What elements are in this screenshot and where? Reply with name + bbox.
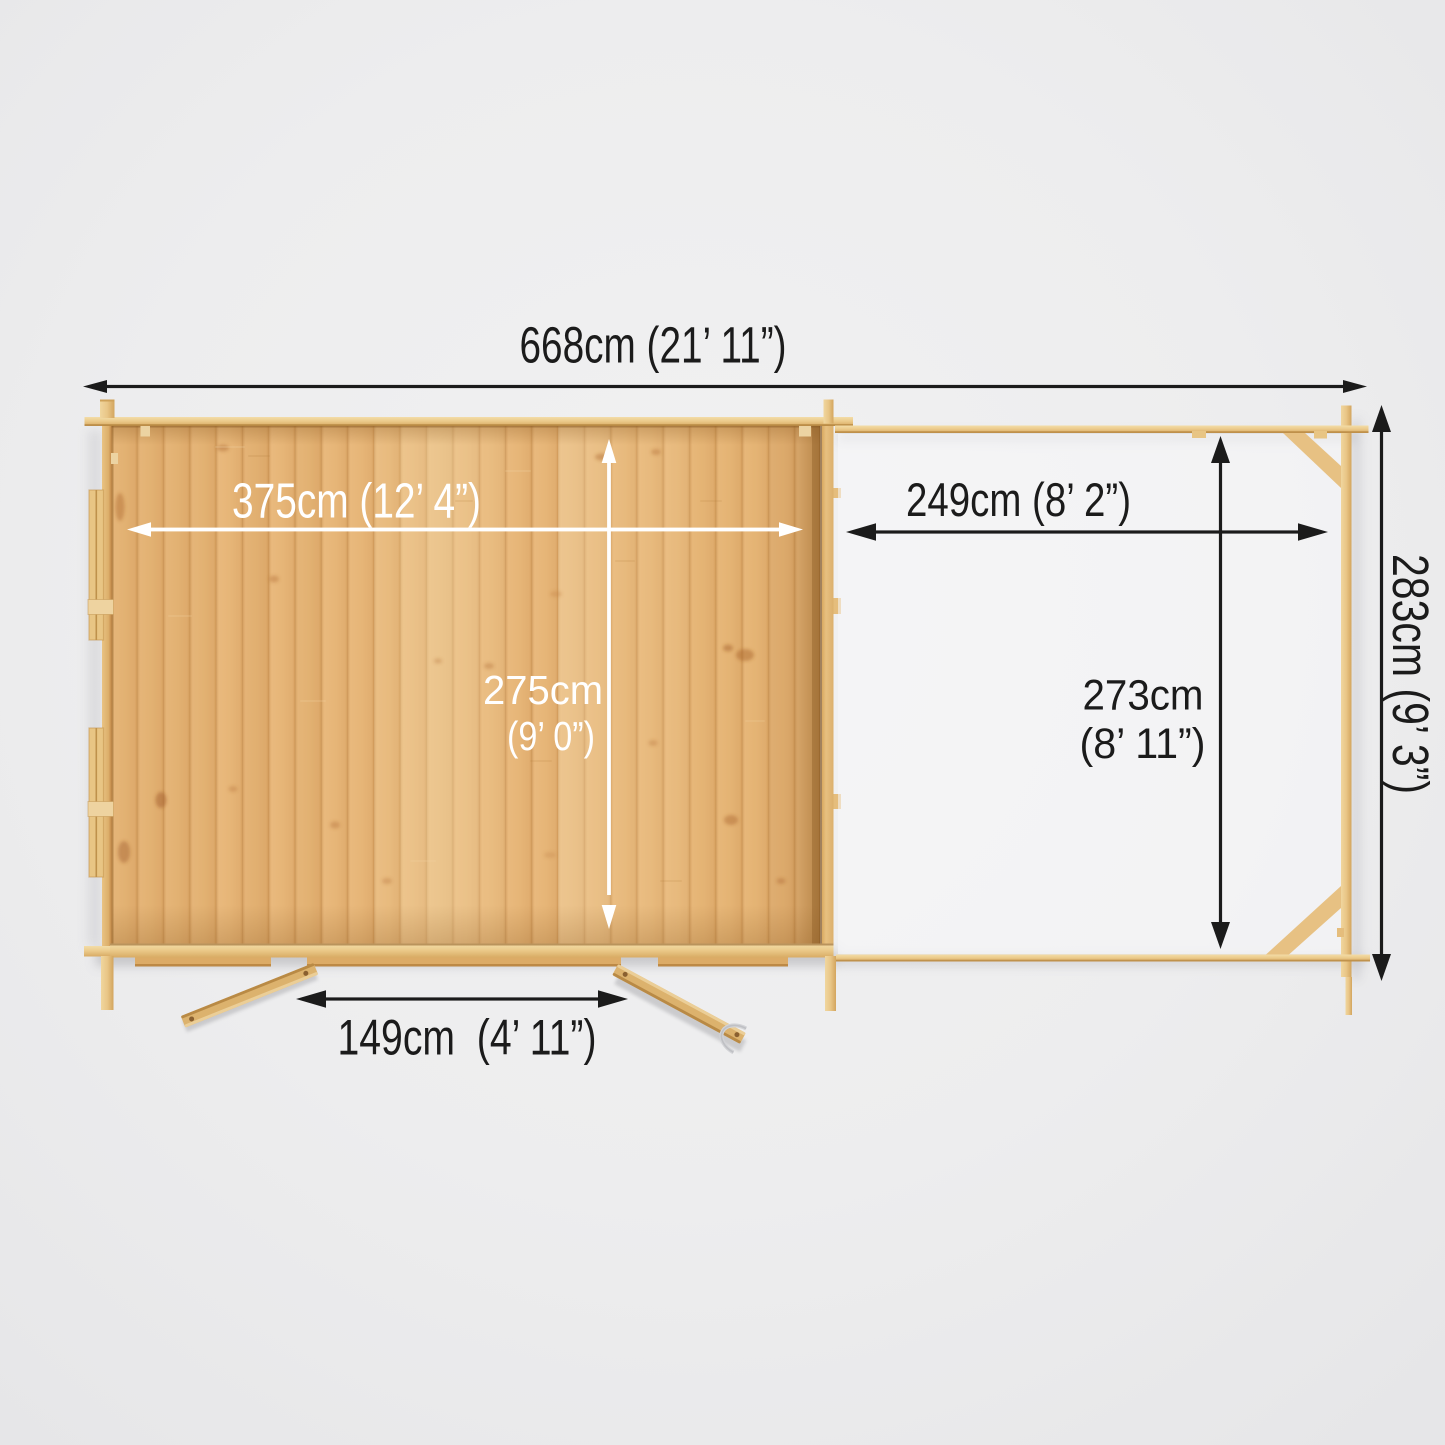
svg-text:283cm (9’ 3”): 283cm (9’ 3”) <box>1382 554 1439 794</box>
svg-text:249cm (8’ 2”): 249cm (8’ 2”) <box>906 473 1131 526</box>
svg-text:275cm: 275cm <box>483 667 603 713</box>
svg-text:149cm (4’ 11”): 149cm (4’ 11”) <box>338 1010 597 1066</box>
svg-text:(9’ 0”): (9’ 0”) <box>507 713 595 759</box>
svg-text:(8’ 11”): (8’ 11”) <box>1080 720 1206 768</box>
svg-text:668cm (21’ 11”): 668cm (21’ 11”) <box>520 317 787 374</box>
svg-text:273cm: 273cm <box>1083 672 1204 720</box>
svg-text:375cm (12’ 4”): 375cm (12’ 4”) <box>232 475 481 529</box>
